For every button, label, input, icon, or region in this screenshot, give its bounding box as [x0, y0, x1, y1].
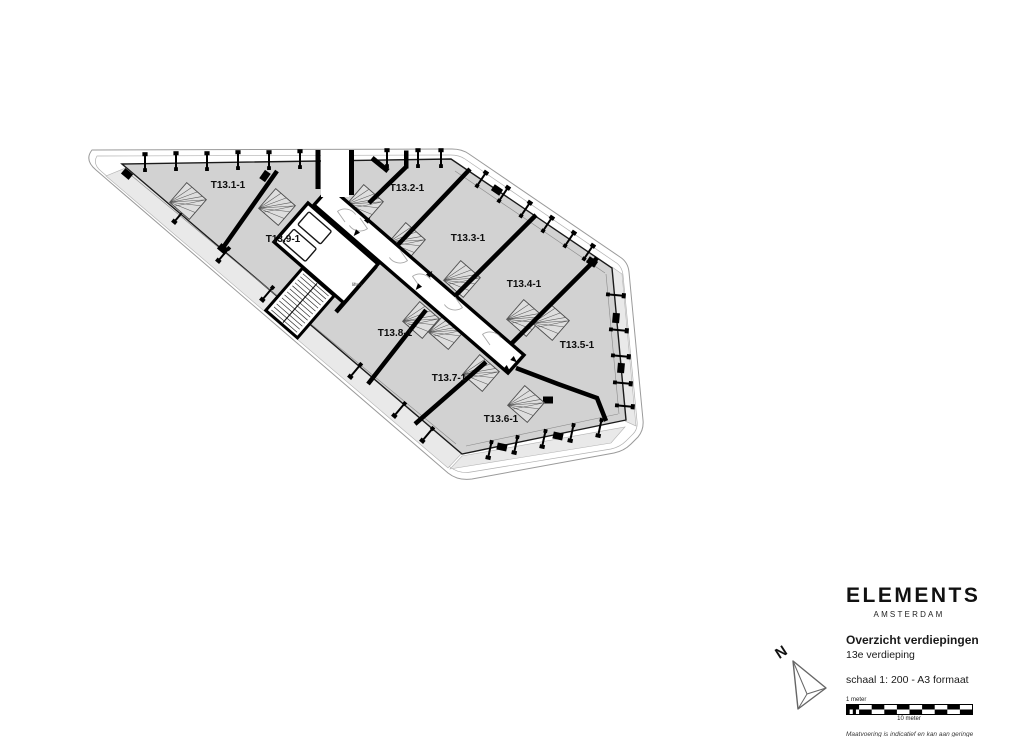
unit-label: T13.9-1: [266, 234, 301, 245]
core-label: liften: [352, 282, 362, 287]
disclaimer: Maatvoering is indicatief en kan aan ger…: [846, 730, 986, 737]
disclaimer-line: Maatvoering is indicatief en kan aan ger…: [846, 730, 986, 737]
drawing-page: liften: [0, 0, 1024, 737]
north-arrow-icon: N: [772, 642, 826, 709]
title-block: ELEMENTS AMSTERDAM Overzicht verdiepinge…: [846, 584, 986, 737]
unit-label: T13.5-1: [560, 340, 595, 351]
brand-city: AMSTERDAM: [846, 610, 972, 619]
unit-label: T13.3-1: [451, 233, 486, 244]
unit-label: T13.4-1: [507, 279, 542, 290]
drawing-floor: 13e verdieping: [846, 649, 986, 661]
unit-label: T13.8-1: [378, 328, 413, 339]
scale-note: schaal 1: 200 - A3 formaat: [846, 674, 986, 686]
unit-label: T13.6-1: [484, 414, 519, 425]
drawing-title: Overzicht verdiepingen: [846, 633, 986, 647]
unit-label: T13.1-1: [211, 180, 246, 191]
unit-label: T13.2-1: [390, 183, 425, 194]
brand-logo: ELEMENTS: [846, 584, 972, 608]
scale-bar: [846, 704, 973, 715]
scalebar-label-top: 1 meter: [846, 697, 986, 703]
unit-label: T13.7-1: [432, 373, 467, 384]
north-label: N: [772, 642, 790, 662]
scalebar-label-bottom: 10 meter: [846, 716, 972, 722]
